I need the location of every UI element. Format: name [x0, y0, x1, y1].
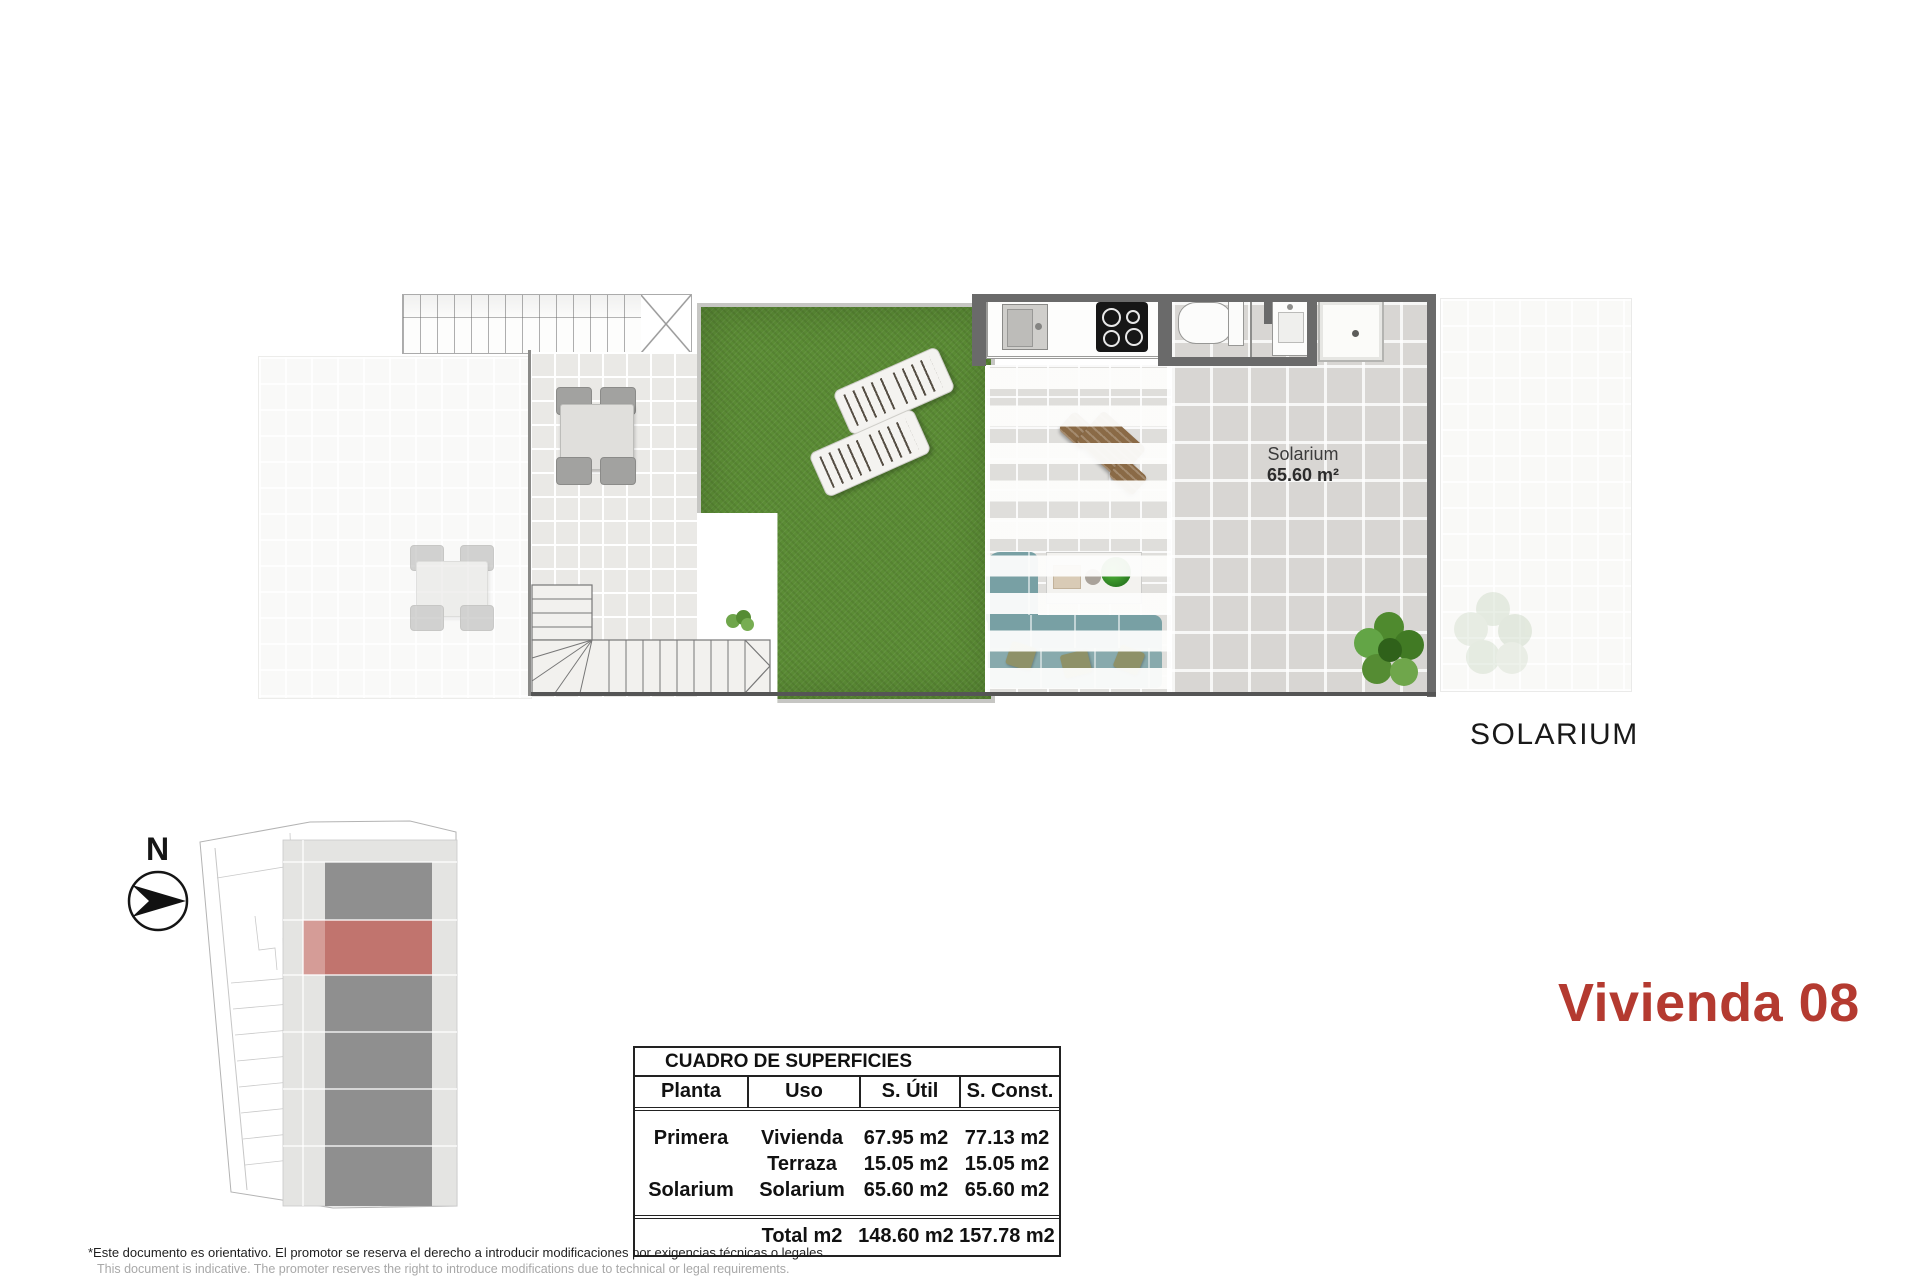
table-row: Terraza 15.05 m2 15.05 m2 — [635, 1151, 1059, 1177]
site-plan — [195, 818, 465, 1213]
site-unit-highlight-light — [303, 920, 325, 975]
table-row: Primera Vivienda 67.95 m2 77.13 m2 — [635, 1125, 1059, 1151]
wall — [1158, 357, 1315, 366]
wall — [1264, 294, 1272, 324]
header-const: S. Const. — [959, 1077, 1059, 1107]
cell-util: 65.60 m2 — [857, 1177, 955, 1203]
areas-table-body: Primera Vivienda 67.95 m2 77.13 m2 Terra… — [635, 1111, 1059, 1219]
areas-table-title: CUADRO DE SUPERFICIES — [635, 1048, 1059, 1077]
toilet-cistern — [1228, 300, 1244, 346]
unit-right-wall — [1427, 294, 1436, 697]
shower-tray — [1318, 300, 1384, 362]
cell-const: 65.60 m2 — [955, 1177, 1059, 1203]
dining-set — [552, 385, 642, 490]
header-uso: Uso — [747, 1077, 859, 1107]
kitchen-sink — [1002, 304, 1048, 350]
washbasin — [1272, 300, 1312, 356]
solarium-room-label: Solarium 65.60 m² — [1238, 444, 1368, 486]
cell-const: 77.13 m2 — [955, 1125, 1059, 1151]
table-row: Solarium Solarium 65.60 m2 65.60 m2 — [635, 1177, 1059, 1203]
wall — [972, 294, 986, 366]
wall — [1158, 294, 1172, 366]
unit-bottom-boundary — [528, 692, 1436, 696]
site-unit-highlight — [325, 920, 432, 975]
floor-plan: Solarium 65.60 m² — [0, 0, 1920, 760]
total-const: 157.78 m2 — [955, 1225, 1059, 1248]
room-area: 65.60 m² — [1238, 465, 1368, 486]
plan-caption: SOLARIUM — [1470, 718, 1639, 752]
wall — [972, 294, 1434, 302]
total-util: 148.60 m2 — [857, 1225, 955, 1248]
cell-planta — [635, 1151, 747, 1177]
cell-uso: Vivienda — [747, 1125, 857, 1151]
cell-const: 15.05 m2 — [955, 1151, 1059, 1177]
disclaimer-en: This document is indicative. The promote… — [97, 1262, 789, 1276]
top-roof-hatch — [402, 294, 692, 354]
areas-table: CUADRO DE SUPERFICIES Planta Uso S. Útil… — [633, 1046, 1061, 1257]
header-util: S. Útil — [859, 1077, 959, 1107]
header-planta: Planta — [635, 1077, 747, 1107]
bath-partition — [1250, 296, 1252, 362]
potted-plant — [1352, 612, 1428, 692]
toilet — [1178, 302, 1232, 344]
cell-util: 67.95 m2 — [857, 1125, 955, 1151]
floorplan-page: Solarium 65.60 m² — [0, 0, 1920, 1280]
cell-uso: Terraza — [747, 1151, 857, 1177]
cooktop — [1096, 302, 1148, 352]
small-plant — [726, 608, 756, 634]
disclaimer-es: *Este documento es orientativo. El promo… — [88, 1245, 827, 1260]
faded-plant — [1452, 592, 1536, 678]
left-neighbor-table — [408, 545, 500, 630]
compass-north-label: N — [146, 831, 169, 867]
staircase — [525, 578, 777, 702]
unit-left-boundary — [528, 350, 531, 696]
cell-util: 15.05 m2 — [857, 1151, 955, 1177]
room-name: Solarium — [1238, 444, 1368, 465]
cell-planta: Solarium — [635, 1177, 747, 1203]
left-neighbor-terrace — [258, 356, 532, 699]
wall — [1307, 294, 1317, 366]
cell-planta: Primera — [635, 1125, 747, 1151]
cell-uso: Solarium — [747, 1177, 857, 1203]
pergola-slats — [985, 368, 1172, 695]
unit-title: Vivienda 08 — [1558, 972, 1860, 1034]
areas-table-header: Planta Uso S. Útil S. Const. — [635, 1077, 1059, 1111]
hatch-fold-mark — [641, 295, 691, 353]
